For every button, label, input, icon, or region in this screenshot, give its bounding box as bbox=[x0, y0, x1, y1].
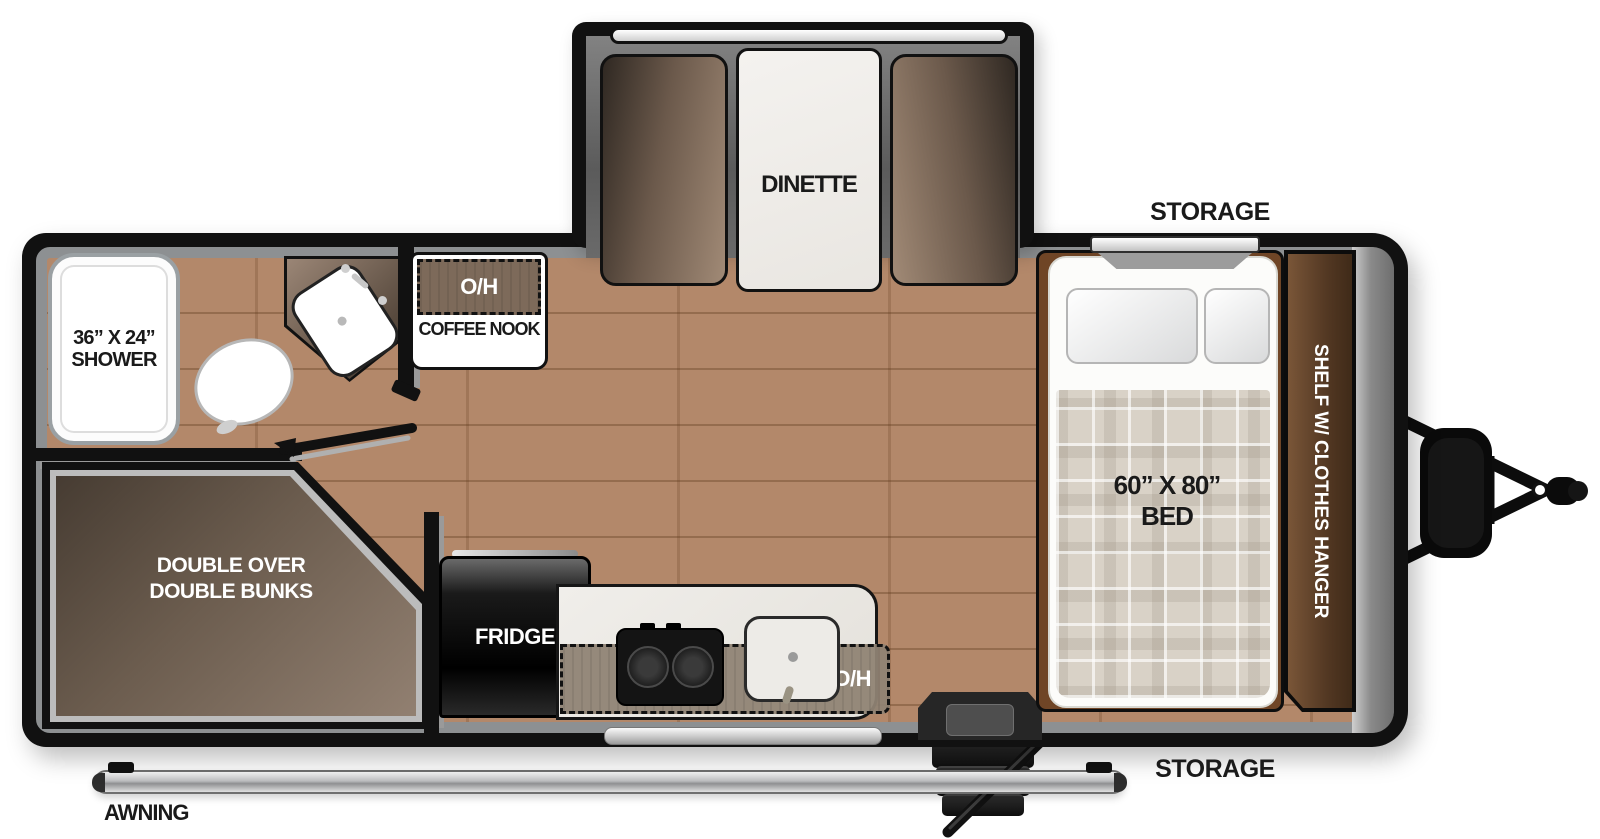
awning-label: AWNING bbox=[104, 800, 188, 826]
coupler bbox=[1534, 484, 1547, 497]
pillow bbox=[1204, 288, 1270, 364]
kitchen-overhead-cabinet: O/H bbox=[560, 644, 890, 714]
entry-door-mat bbox=[946, 704, 1014, 736]
awning-bracket bbox=[1086, 762, 1112, 773]
propane-tank-cover bbox=[1420, 428, 1492, 558]
bed-blanket bbox=[1056, 390, 1270, 698]
burner bbox=[672, 646, 714, 688]
storage-top-label: STORAGE bbox=[1120, 198, 1300, 227]
coffee-nook-overhead-cabinet: O/H bbox=[417, 259, 541, 315]
entry-step bbox=[942, 794, 1024, 816]
bathroom-bottom-wall bbox=[36, 448, 302, 461]
dinette-label: DINETTE bbox=[761, 171, 857, 199]
shower: 36” X 24” SHOWER bbox=[48, 253, 180, 445]
coffee-nook-label: COFFEE NOOK bbox=[413, 319, 545, 340]
bed-label: 60” X 80” BED bbox=[1060, 470, 1274, 531]
sink-drain bbox=[788, 652, 798, 662]
coffee-nook: O/H COFFEE NOOK bbox=[410, 252, 548, 370]
bunks-label: DOUBLE OVER DOUBLE BUNKS bbox=[36, 553, 426, 604]
rv-floorplan: AWNING DINETTE 36” X 24” SHOWER O/H COFF… bbox=[0, 0, 1600, 839]
dinette-table: DINETTE bbox=[736, 48, 882, 292]
storage-bottom-label: STORAGE bbox=[1125, 755, 1305, 784]
cooktop-knob bbox=[640, 623, 655, 630]
shower-label: 36” X 24” SHOWER bbox=[71, 327, 156, 372]
dinette-bench-left bbox=[600, 54, 728, 286]
exterior-rail bbox=[604, 727, 882, 745]
storage-hatch bbox=[1090, 236, 1260, 253]
awning-bar bbox=[94, 770, 1125, 794]
hitch-ball-mount bbox=[1546, 477, 1580, 505]
awning-end-cap bbox=[92, 773, 105, 792]
burner bbox=[627, 646, 669, 688]
shelf-label: SHELF W/ CLOTHES HANGER bbox=[1309, 344, 1331, 618]
shelf-clothes-hanger: SHELF W/ CLOTHES HANGER bbox=[1288, 254, 1352, 708]
kitchen-wall bbox=[424, 512, 439, 733]
storage-hatch-frame bbox=[1098, 253, 1252, 269]
cooktop-knob bbox=[666, 623, 681, 630]
pillow bbox=[1066, 288, 1198, 364]
awning-bracket bbox=[108, 762, 134, 773]
slideout-rail bbox=[610, 27, 1008, 44]
faucet-dot bbox=[341, 264, 350, 273]
fridge-label: FRIDGE bbox=[475, 624, 555, 650]
cooktop bbox=[616, 628, 724, 706]
faucet-dot bbox=[378, 296, 387, 305]
front-cap bbox=[1352, 247, 1394, 733]
dinette-bench-right bbox=[890, 54, 1018, 286]
